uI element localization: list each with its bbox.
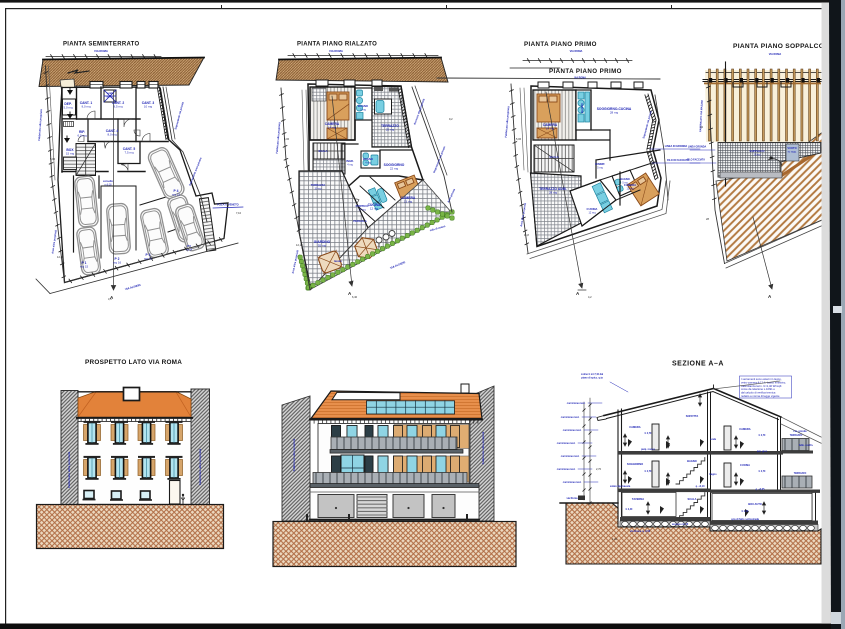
svg-text:cornicione mod.: cornicione mod. [563, 429, 582, 432]
svg-text:via Roma q. 0,00: via Roma q. 0,00 [630, 529, 651, 533]
svg-text:14 mq: 14 mq [359, 208, 367, 211]
svg-text:LINEA GRONDA: LINEA GRONDA [688, 146, 707, 149]
svg-text:cornicione mod.: cornicione mod. [557, 468, 576, 471]
svg-text:18 mq: 18 mq [754, 153, 761, 156]
svg-text:tavolo: tavolo [334, 259, 342, 263]
svg-text:BAGNO: BAGNO [687, 459, 697, 463]
svg-text:TERRAZZO: TERRAZZO [790, 434, 803, 437]
svg-text:FILO FACCIATA: FILO FACCIATA [687, 159, 705, 162]
svg-text:8,0 mq: 8,0 mq [107, 132, 116, 136]
svg-text:mq 15: mq 15 [172, 192, 181, 196]
svg-text:SCALA: SCALA [549, 155, 558, 159]
svg-text:PERGOLA: PERGOLA [353, 219, 366, 223]
svg-text:cornicione mod.: cornicione mod. [567, 402, 586, 405]
svg-text:7,10: 7,10 [236, 211, 242, 215]
svg-text:13 mq: 13 mq [627, 187, 635, 190]
svg-text:vespaio cm 30: vespaio cm 30 [672, 523, 689, 526]
svg-text:CAMERA: CAMERA [629, 425, 641, 429]
svg-text:5 mq: 5 mq [360, 108, 366, 111]
svg-text:BAGNO: BAGNO [363, 157, 373, 161]
svg-text:12 mq: 12 mq [589, 211, 597, 214]
svg-text:PIANTA PIANO PRIMO: PIANTA PIANO PRIMO [549, 68, 622, 75]
svg-text:piano di spicc. q.ta: piano di spicc. q.ta [581, 377, 603, 380]
svg-text:come da relazione L.10/91 e: come da relazione L.10/91 e [741, 387, 775, 391]
svg-text:h 2,70: h 2,70 [645, 432, 652, 435]
svg-text:55 mq: 55 mq [318, 243, 327, 247]
svg-text:25 mq: 25 mq [386, 127, 395, 131]
svg-text:corsello: corsello [103, 179, 113, 183]
svg-text:FILO DI FACCIATA: FILO DI FACCIATA [667, 159, 689, 162]
svg-text:PORTICO: PORTICO [356, 204, 370, 208]
svg-text:TERRAZZO: TERRAZZO [794, 472, 807, 475]
svg-text:Fabbricato altra proprietà: Fabbricato altra proprietà [198, 448, 202, 485]
svg-text:cornicione mod.: cornicione mod. [561, 455, 580, 458]
svg-text:4 mq: 4 mq [365, 161, 371, 164]
svg-text:h 2,40: h 2,40 [742, 510, 749, 513]
svg-text:q. +0,05: q. +0,05 [756, 488, 766, 491]
svg-text:7,5 mq: 7,5 mq [124, 150, 133, 154]
svg-text:Lin. gronda: Lin. gronda [793, 430, 807, 433]
svg-text:VIA ROMA: VIA ROMA [94, 49, 108, 53]
svg-text:q. +0,10: q. +0,10 [696, 485, 706, 488]
svg-text:PIANTA SEMINTERRATO: PIANTA SEMINTERRATO [63, 42, 140, 48]
svg-text:SEZIONE A–A: SEZIONE A–A [672, 361, 724, 368]
svg-text:mq 15: mq 15 [144, 256, 153, 260]
svg-text:VIA ROMA: VIA ROMA [329, 49, 343, 53]
svg-text:P 5: P 5 [187, 244, 191, 248]
svg-text:dal calcolo di verifica termic: dal calcolo di verifica termica [741, 391, 776, 395]
svg-text:VIA ROMA: VIA ROMA [574, 77, 586, 80]
svg-text:SCALA: SCALA [318, 149, 327, 153]
svg-text:30 mq: 30 mq [315, 187, 322, 190]
svg-text:VUOTO: VUOTO [787, 146, 796, 150]
svg-text:P.ZZA V. VENETO: P.ZZA V. VENETO [217, 203, 238, 207]
svg-text:4,2: 4,2 [588, 295, 592, 299]
svg-text:10 mq: 10 mq [144, 104, 153, 108]
svg-text:28 mq: 28 mq [549, 190, 558, 194]
svg-text:bagno: bagno [709, 473, 717, 476]
svg-text:SCALA: SCALA [688, 497, 697, 501]
svg-text:4 mq: 4 mq [347, 163, 353, 166]
svg-text:PIANTA PIANO PRIMO: PIANTA PIANO PRIMO [524, 41, 597, 48]
svg-text:mq 15: mq 15 [80, 264, 89, 268]
svg-text:TERRAZZA: TERRAZZA [311, 183, 326, 187]
svg-text:5 mq: 5 mq [597, 166, 603, 169]
svg-text:SOGGIORNO: SOGGIORNO [627, 462, 643, 466]
svg-text:h 2,70: h 2,70 [759, 434, 766, 437]
svg-text:solaio tipo bausta: solaio tipo bausta [610, 485, 631, 488]
svg-text:CUCINA: CUCINA [740, 463, 750, 467]
svg-text:12,10: 12,10 [296, 243, 303, 247]
svg-text:cornicione mod.: cornicione mod. [561, 416, 580, 419]
svg-text:SOFFITTA: SOFFITTA [686, 414, 699, 418]
svg-text:9,0 mq: 9,0 mq [81, 104, 90, 108]
svg-text:TAVERNA: TAVERNA [632, 497, 644, 501]
svg-text:13 mq: 13 mq [404, 199, 413, 203]
svg-text:5,06: 5,06 [284, 137, 290, 141]
svg-text:28 mq: 28 mq [610, 110, 619, 114]
svg-text:Fabbricato altra proprietà: Fabbricato altra proprietà [67, 451, 71, 488]
svg-text:BAGNO: BAGNO [620, 177, 630, 181]
svg-text:h 2,70: h 2,70 [645, 470, 652, 473]
svg-text:scala: scala [710, 438, 717, 441]
svg-text:INGR.: INGR. [346, 159, 354, 163]
svg-text:cornicione mod.: cornicione mod. [557, 442, 576, 445]
svg-text:BOX AUTO: BOX AUTO [748, 502, 762, 506]
svg-text:PIANTA PIANO SOPPALCO: PIANTA PIANO SOPPALCO [733, 43, 824, 50]
svg-text:5,06: 5,06 [516, 137, 522, 141]
svg-text:DISIMP.: DISIMP. [595, 162, 605, 166]
svg-text:14 mq: 14 mq [328, 125, 337, 129]
svg-text:2,70: 2,70 [596, 467, 602, 471]
svg-text:CAMERA: CAMERA [739, 427, 751, 431]
svg-text:CUCINA: CUCINA [587, 207, 598, 211]
svg-text:disimp.: disimp. [106, 96, 114, 98]
svg-text:pav. gres: pav. gres [757, 450, 768, 453]
svg-text:SOPPALCO: SOPPALCO [750, 149, 765, 153]
svg-text:9,5 mq: 9,5 mq [113, 104, 122, 108]
svg-text:15 mq: 15 mq [66, 151, 75, 155]
svg-text:VIA ROMA: VIA ROMA [570, 49, 583, 53]
svg-text:LINEA DI GRONDA: LINEA DI GRONDA [665, 145, 688, 148]
svg-text:22 mq: 22 mq [390, 166, 399, 170]
svg-text:5,0 mq: 5,0 mq [63, 105, 72, 109]
svg-text:fabb. confin.: fabb. confin. [799, 444, 814, 447]
svg-text:via Roma: via Roma [566, 497, 578, 500]
svg-text:mq 14: mq 14 [186, 249, 193, 251]
svg-text:mq 16: mq 16 [113, 260, 122, 264]
svg-text:12,40: 12,40 [57, 255, 64, 259]
svg-text:11,8: 11,8 [524, 233, 529, 237]
svg-text:m 6,00: m 6,00 [104, 184, 112, 186]
svg-text:6,40: 6,40 [352, 295, 358, 299]
svg-text:3,5: 3,5 [108, 297, 112, 301]
svg-text:6,0 mq: 6,0 mq [77, 133, 86, 137]
svg-text:scala: scala [107, 91, 114, 95]
svg-text:1,20: 1,20 [612, 537, 618, 541]
svg-text:Fabbricato altra proprietà: Fabbricato altra proprietà [292, 438, 296, 471]
svg-text:PIANTA PIANO RIALZATO: PIANTA PIANO RIALZATO [297, 42, 377, 48]
svg-text:12 mq: 12 mq [370, 206, 379, 210]
svg-text:VIA ROMA: VIA ROMA [769, 53, 782, 56]
svg-text:q.ta di fatto sottostrada: q.ta di fatto sottostrada [731, 518, 759, 521]
svg-text:redatto a norma di legge vigen: redatto a norma di legge vigente [741, 394, 780, 398]
svg-text:CAMERA: CAMERA [624, 183, 636, 187]
svg-text:PROSPETTO LATO VIA ROMA: PROSPETTO LATO VIA ROMA [85, 359, 182, 366]
svg-text:9,2: 9,2 [449, 117, 453, 121]
svg-text:I serramenti sono esterni in l: I serramenti sono esterni in legno, [741, 377, 782, 381]
svg-text:BAGNO: BAGNO [580, 103, 584, 113]
svg-text:parq. rovere: parq. rovere [641, 448, 655, 451]
svg-text:cornicione mod.: cornicione mod. [563, 481, 582, 484]
svg-text:Fabbricato altra proprietà: Fabbricato altra proprietà [481, 431, 485, 464]
svg-text:h 2,40: h 2,40 [626, 508, 633, 511]
svg-text:trasmittanza term. U=1,40 W/mq: trasmittanza term. U=1,40 W/mqK [741, 384, 782, 388]
svg-text:h 2,70: h 2,70 [759, 470, 766, 473]
svg-text:14 mq: 14 mq [546, 126, 555, 130]
svg-text:BAGNO: BAGNO [358, 104, 368, 108]
svg-text:5,06: 5,06 [50, 157, 56, 161]
svg-text:su sogg.: su sogg. [788, 151, 797, 153]
